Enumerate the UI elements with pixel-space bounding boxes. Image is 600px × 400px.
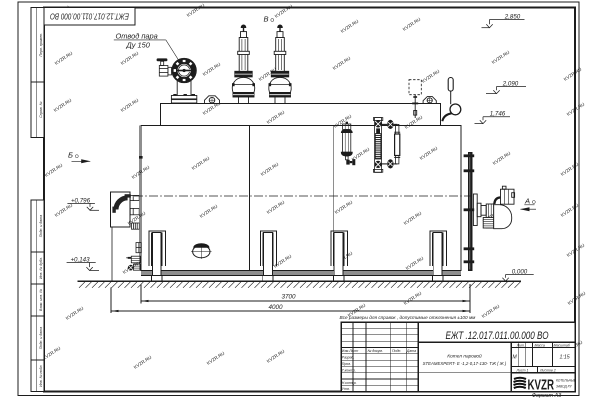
svg-text:Дата: Дата: [406, 349, 416, 353]
svg-text:+0,143: +0,143: [70, 256, 90, 263]
svg-text:КОТЕЛЬНЫЙ: КОТЕЛЬНЫЙ: [556, 379, 577, 383]
svg-text:4000: 4000: [268, 304, 283, 311]
svg-text:А: А: [524, 196, 530, 205]
svg-text:1,746: 1,746: [490, 111, 506, 118]
svg-text:В: В: [264, 15, 269, 24]
svg-text:Подп. и дата: Подп. и дата: [39, 215, 43, 238]
svg-text:Все размеры для справок , допу: Все размеры для справок , допустимые отк…: [340, 315, 477, 320]
svg-text:Котел паровой: Котел паровой: [447, 353, 482, 360]
svg-text:Разраб.: Разраб.: [342, 356, 355, 360]
svg-text:Б: Б: [68, 151, 73, 160]
svg-text:Т.контр.: Т.контр.: [342, 368, 356, 372]
svg-text:2,090: 2,090: [502, 80, 519, 87]
svg-text:Изм.Лист: Изм.Лист: [342, 349, 359, 353]
svg-text:1:15: 1:15: [560, 355, 570, 361]
svg-text:ЕЖТ .12.017.011.00.000 ВО: ЕЖТ .12.017.011.00.000 ВО: [446, 330, 549, 342]
svg-text:Пров.: Пров.: [342, 362, 351, 366]
svg-text:2,850: 2,850: [504, 13, 521, 20]
svg-text:0,000: 0,000: [512, 268, 528, 275]
svg-text:Перв. примен.: Перв. примен.: [39, 33, 43, 57]
svg-text:Подп. и дата: Подп. и дата: [39, 327, 43, 350]
svg-text:Масса: Масса: [535, 343, 545, 347]
svg-text:Формат А3: Формат А3: [532, 393, 562, 399]
svg-text:Масштаб: Масштаб: [554, 343, 571, 347]
svg-text:Подп.: Подп.: [392, 349, 401, 353]
svg-text:Утв.: Утв.: [342, 387, 350, 391]
svg-text:Ду 150: Ду 150: [126, 40, 151, 49]
svg-text:Лит.: Лит.: [516, 343, 525, 347]
svg-text:Лист 1: Лист 1: [516, 369, 529, 373]
svg-text:STEAMEXPERT- Е -1,2-0,17-130-: STEAMEXPERT- Е -1,2-0,17-130- ТЖ ( Ж ): [423, 361, 507, 366]
svg-text:Н.контр.: Н.контр.: [342, 381, 357, 385]
svg-text:Справ. №: Справ. №: [39, 101, 43, 117]
svg-text:Отвод пара: Отвод пара: [116, 32, 158, 41]
svg-text:3700: 3700: [281, 294, 296, 301]
svg-text:ЗАВОД РУ: ЗАВОД РУ: [556, 385, 573, 389]
svg-text:Листов 2: Листов 2: [539, 369, 556, 373]
svg-text:+0,796: +0,796: [71, 197, 91, 204]
svg-text:KVZR: KVZR: [528, 377, 555, 393]
svg-text:ЕЖТ.12.017.011.00.000 ВО: ЕЖТ.12.017.011.00.000 ВО: [50, 11, 129, 21]
svg-text:Взам. инв. №: Взам. инв. №: [39, 289, 43, 311]
svg-text:№ докум.: № докум.: [368, 349, 383, 353]
svg-text:Инв. № дубл.: Инв. № дубл.: [39, 257, 43, 279]
svg-text:Инв. № подл.: Инв. № подл.: [39, 365, 43, 387]
